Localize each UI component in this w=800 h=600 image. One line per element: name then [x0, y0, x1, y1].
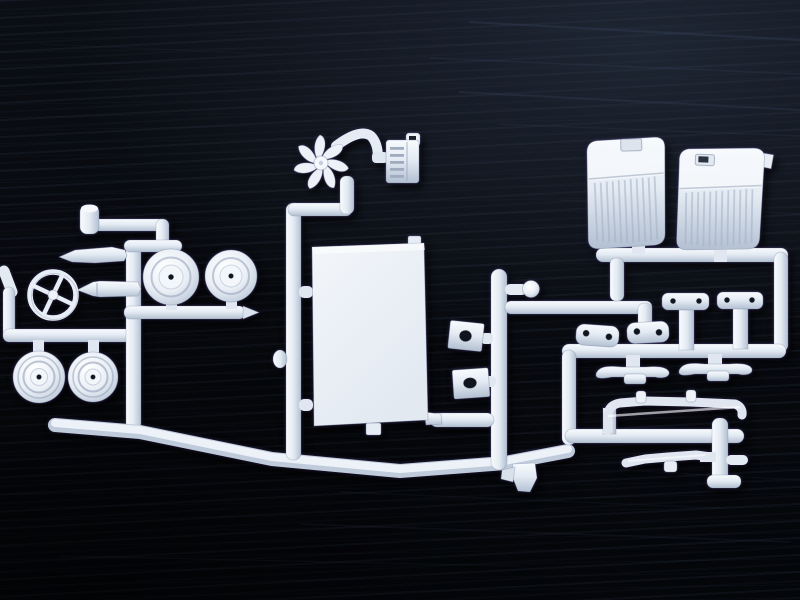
runner-center-vertical [286, 203, 301, 460]
runner-z-vertical [610, 258, 624, 301]
runner-right-vertical [774, 252, 788, 352]
t-bracket-1 [662, 293, 709, 310]
front-wheel-1 [143, 249, 199, 305]
photo-canvas [0, 0, 800, 600]
sprue-foot-right [707, 475, 741, 488]
steering-wheel [30, 272, 78, 320]
runner-tip [243, 306, 259, 319]
rear-wheel-2 [68, 352, 118, 402]
axle-perch-2 [686, 390, 696, 402]
stub-far-right [726, 455, 748, 465]
shackle-plate-1 [575, 324, 619, 348]
shackle-plate-2 [626, 321, 669, 344]
oil-filter [80, 205, 99, 235]
gate-seat-right [714, 250, 727, 262]
gate-panel-bottom [299, 399, 313, 411]
axle-perch-1 [636, 391, 646, 403]
leaf-spring-2 [679, 363, 752, 381]
runner-fan-vertical [340, 176, 354, 214]
panel-tab-bottom [366, 423, 381, 435]
runner-left-vertical [126, 243, 141, 430]
sprue-tree [3, 133, 788, 492]
floor-panel [312, 236, 442, 435]
gate-panel-top [299, 286, 313, 298]
sprue-photo [0, 0, 800, 600]
seat-left [586, 137, 668, 249]
stem-t-bracket-1 [679, 306, 694, 350]
front-wheel-2 [205, 250, 257, 302]
radiator [386, 133, 420, 183]
steering-column [77, 281, 141, 297]
firewall-plate-b [452, 368, 490, 399]
seat-right [676, 146, 774, 253]
runner-frame-left-horizontal [3, 329, 134, 342]
seat-left-slot [621, 139, 642, 152]
exhaust-pipe [59, 247, 127, 263]
runner-mid-vertical [491, 269, 507, 470]
stem-t-bracket-2 [733, 305, 748, 349]
rear-wheel-1 [13, 351, 65, 403]
firewall-plate-a [448, 320, 485, 351]
runner-mid-horizontal [505, 301, 652, 314]
t-bracket-2 [717, 292, 763, 309]
axle-nub [664, 461, 677, 472]
leaf-spring-1 [596, 366, 669, 384]
runner-nub-left [273, 350, 287, 368]
gear-knob [523, 281, 540, 298]
runner-far-right-vertical [712, 418, 728, 482]
sprue-foot-center [512, 463, 537, 492]
rear-axle [626, 455, 711, 472]
